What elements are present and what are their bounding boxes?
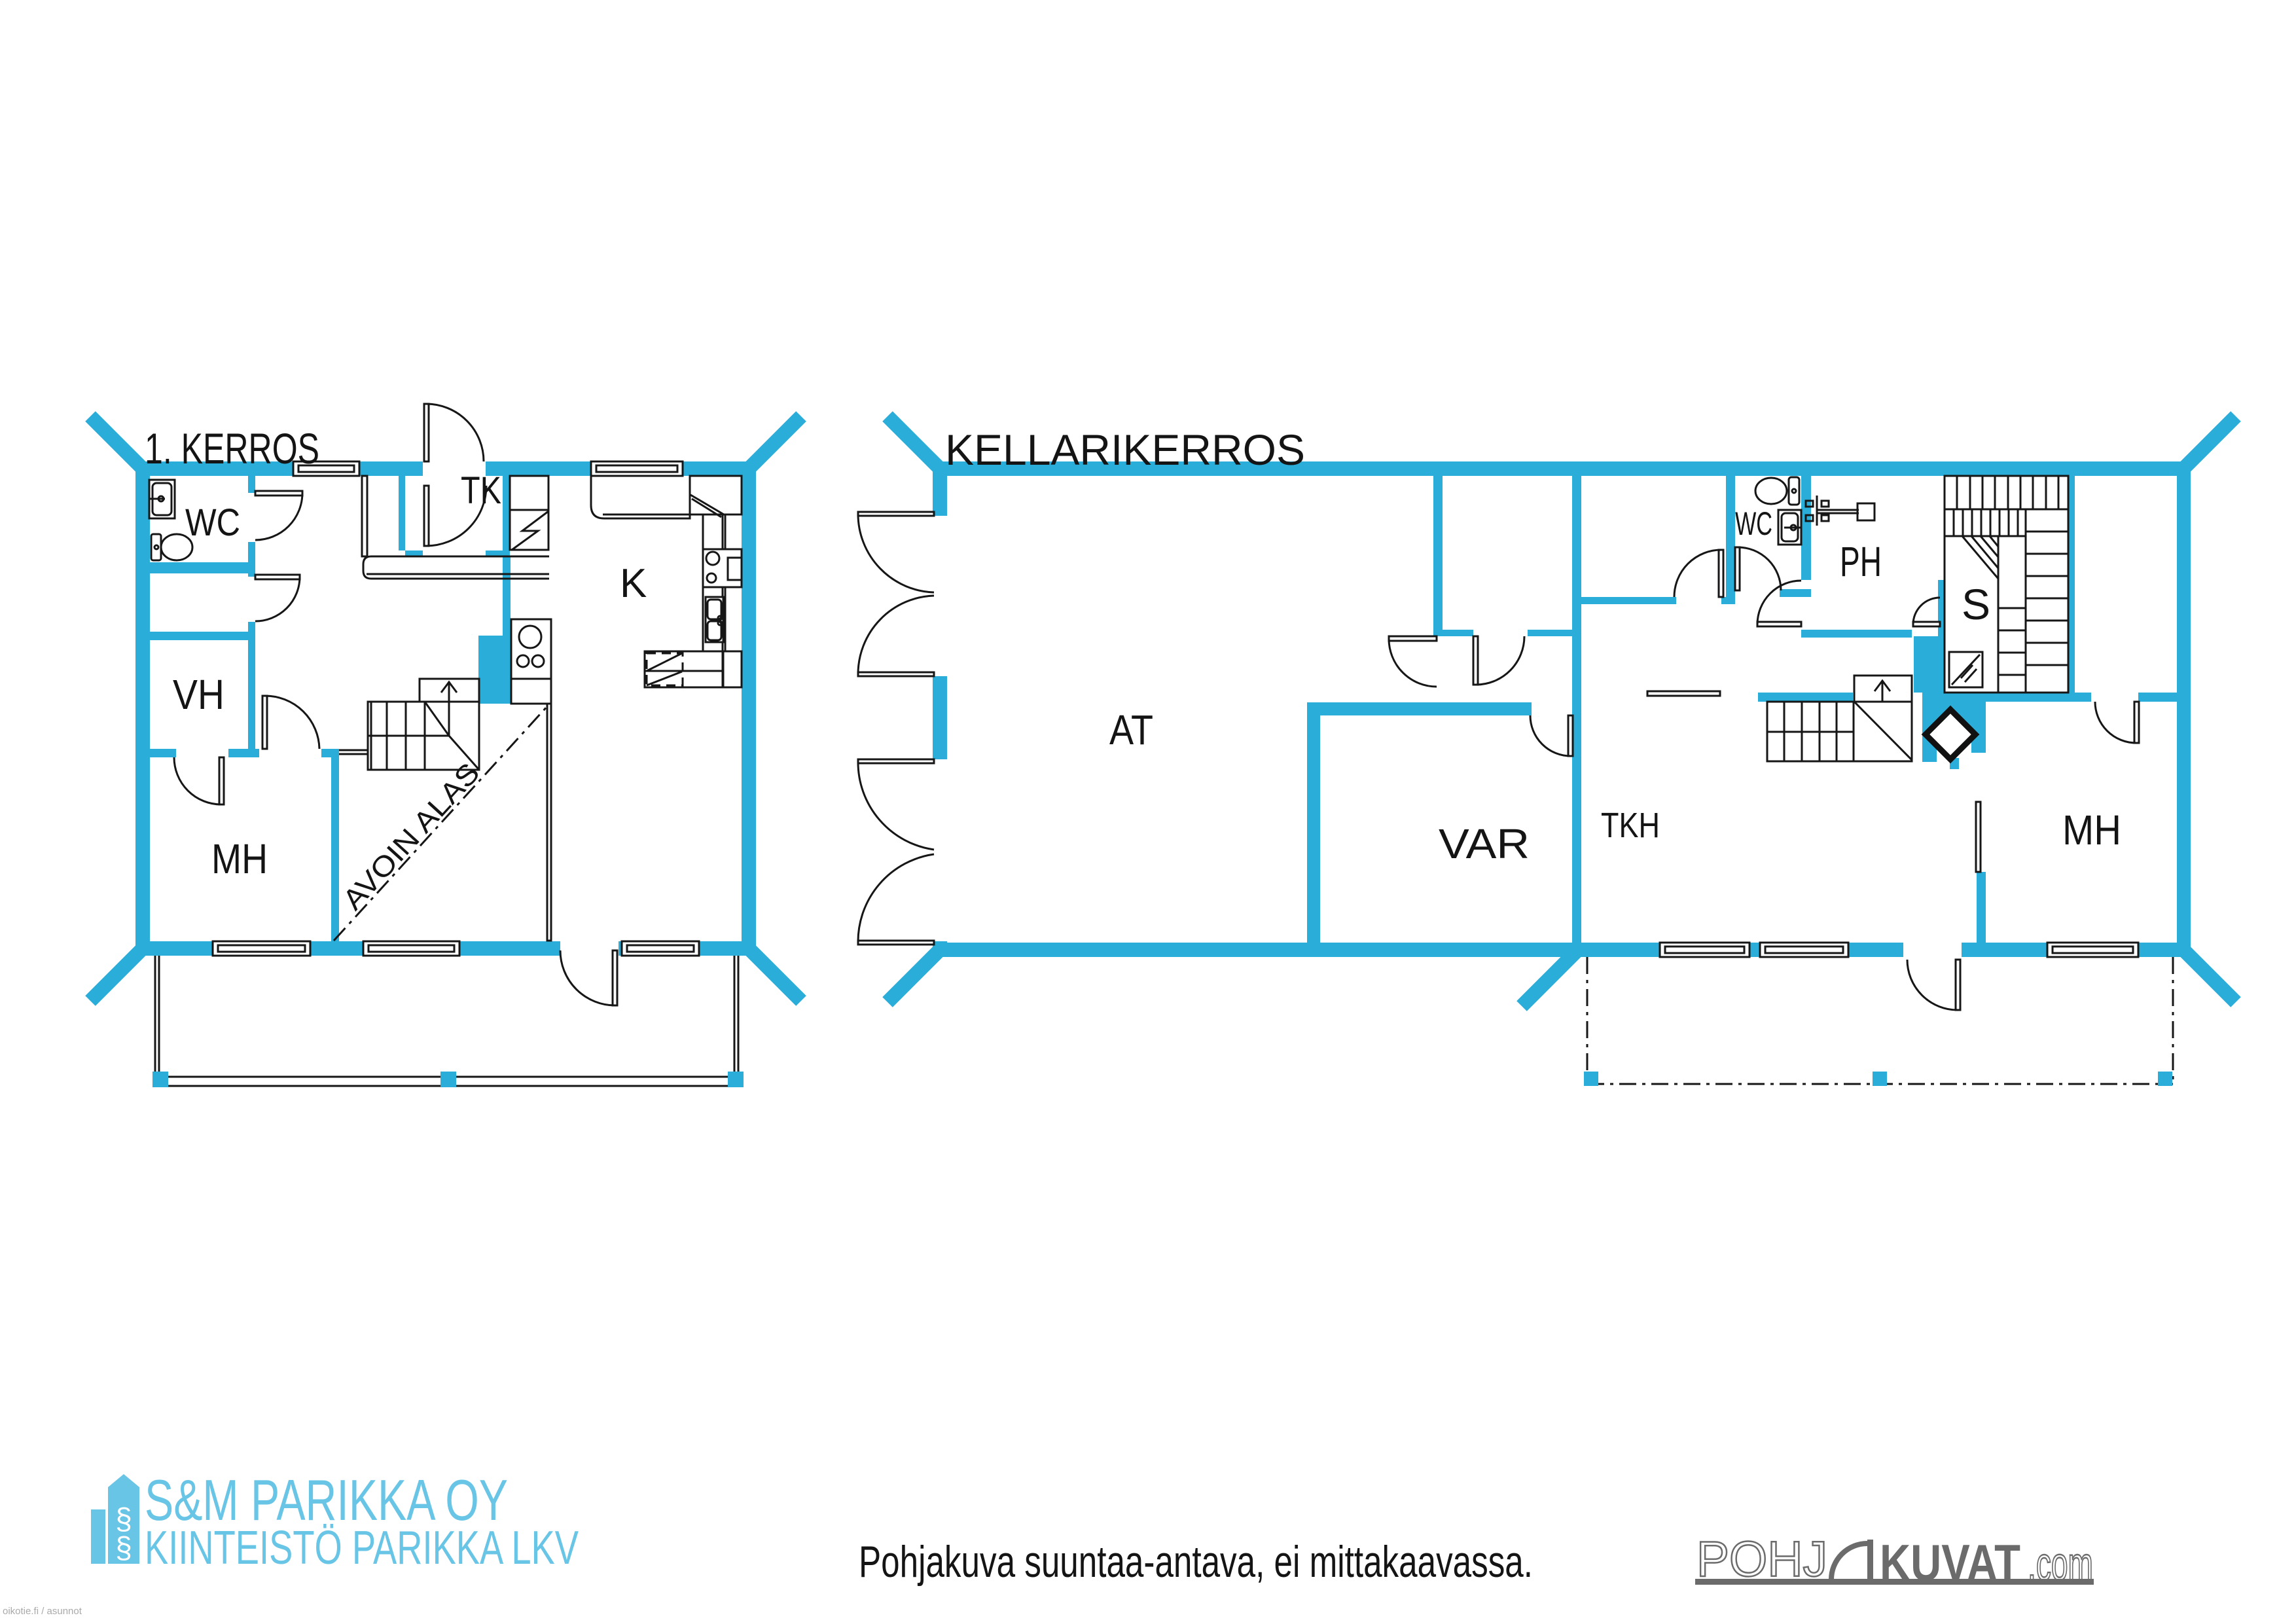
svg-text:KUVAT: KUVAT	[1880, 1534, 2020, 1591]
svg-text:PH: PH	[1840, 538, 1882, 585]
svg-text:POHJ: POHJ	[1696, 1532, 1827, 1587]
svg-text:K: K	[620, 561, 647, 606]
svg-text:S: S	[1962, 580, 1990, 628]
svg-text:§: §	[115, 1530, 132, 1564]
svg-text:KIINTEISTÖ PARIKKA LKV: KIINTEISTÖ PARIKKA LKV	[145, 1522, 579, 1574]
svg-text:TK: TK	[461, 469, 501, 512]
svg-text:AT: AT	[1109, 706, 1153, 753]
svg-text:oikotie.fi / asunnot: oikotie.fi / asunnot	[3, 1606, 82, 1617]
svg-text:TKH: TKH	[1601, 806, 1660, 845]
svg-text:1. KERROS: 1. KERROS	[145, 424, 319, 473]
svg-text:MH: MH	[2062, 806, 2121, 854]
svg-text:WC: WC	[185, 501, 240, 544]
svg-text:.com: .com	[2028, 1538, 2093, 1591]
svg-text:WC: WC	[1735, 505, 1772, 542]
svg-text:MH: MH	[211, 835, 268, 882]
svg-text:VH: VH	[173, 671, 224, 718]
svg-text:VAR: VAR	[1439, 820, 1530, 867]
svg-text:KELLARIKERROS: KELLARIKERROS	[945, 425, 1305, 474]
svg-text:Pohjakuva suuntaa-antava, ei m: Pohjakuva suuntaa-antava, ei mittakaavas…	[859, 1537, 1533, 1587]
